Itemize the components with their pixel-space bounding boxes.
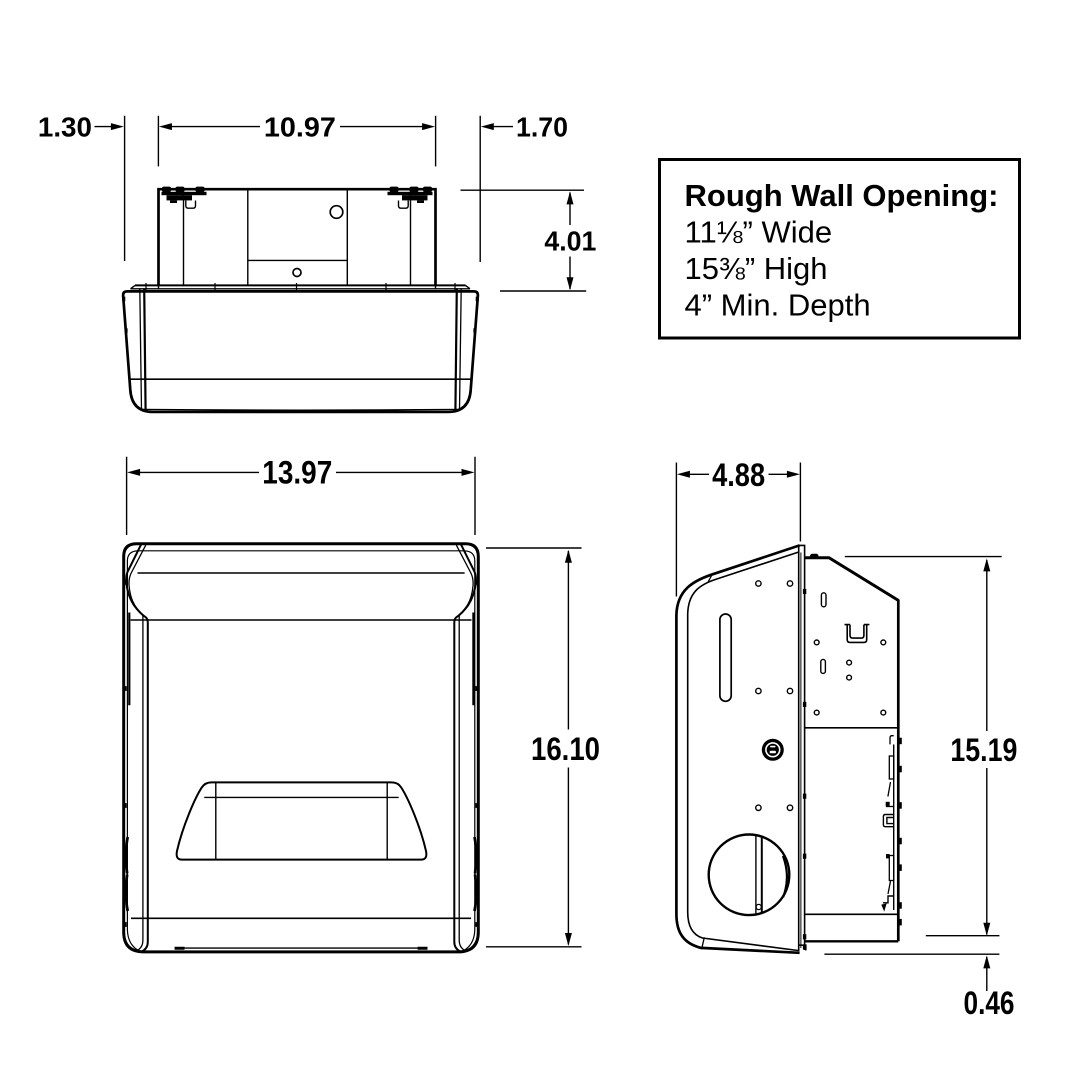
svg-text:4.88: 4.88 <box>712 457 765 493</box>
svg-text:16.10: 16.10 <box>531 731 600 767</box>
svg-text:1.30: 1.30 <box>38 111 92 142</box>
svg-text:15.19: 15.19 <box>950 732 1017 768</box>
svg-text:4” Min. Depth: 4” Min. Depth <box>685 288 871 323</box>
svg-text:11⅛” Wide: 11⅛” Wide <box>685 215 833 250</box>
svg-text:15⅜” High: 15⅜” High <box>685 251 828 286</box>
svg-text:10.97: 10.97 <box>264 111 336 142</box>
svg-text:4.01: 4.01 <box>544 225 596 256</box>
svg-text:0.46: 0.46 <box>964 985 1015 1021</box>
svg-text:13.97: 13.97 <box>262 455 332 491</box>
svg-text:1.70: 1.70 <box>516 111 568 142</box>
svg-text:Rough Wall Opening:: Rough Wall Opening: <box>685 178 999 213</box>
